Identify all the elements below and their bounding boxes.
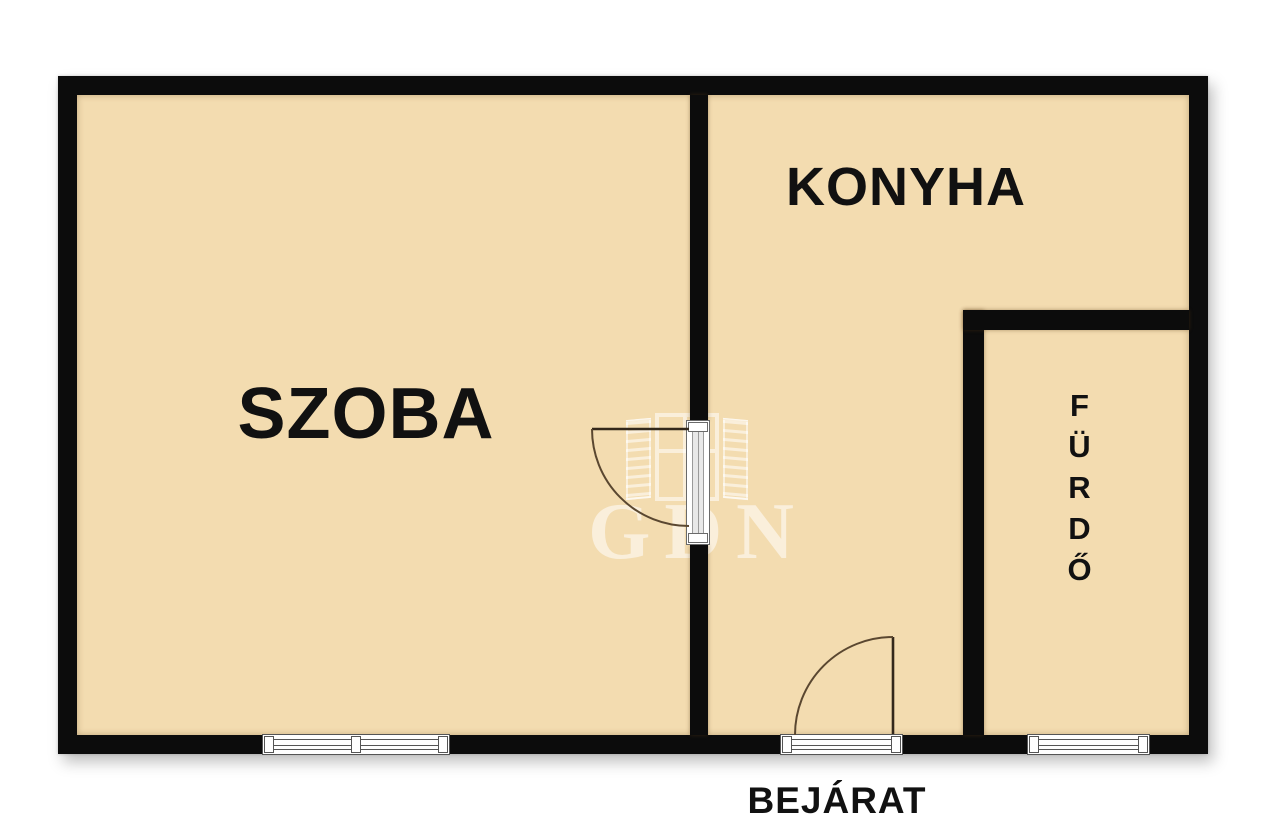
door-jamb-bottom — [688, 533, 708, 543]
threshold-jamb-left — [782, 736, 792, 753]
interior-door — [686, 420, 710, 545]
threshold-lines — [791, 739, 892, 750]
window-jamb-left — [264, 736, 274, 753]
entrance-label: BEJÁRAT — [687, 781, 987, 821]
window-right — [1027, 734, 1150, 755]
floor-plan-page: GDN — [0, 0, 1280, 837]
window-left — [262, 734, 450, 755]
wall-furdo-top — [963, 310, 1189, 330]
room-label-konyha: KONYHA — [706, 159, 1106, 215]
door-jamb-top — [688, 422, 708, 432]
threshold-jamb-right — [891, 736, 901, 753]
interior-door-leaf-closed — [692, 432, 704, 533]
wall-szoba-konyha-lower — [690, 545, 708, 735]
entrance-threshold — [780, 734, 903, 755]
window-jamb-right — [438, 736, 448, 753]
room-label-szoba: SZOBA — [166, 377, 566, 451]
window-jamb-left — [1029, 736, 1039, 753]
window-mullion — [351, 736, 361, 753]
window-jamb-right — [1138, 736, 1148, 753]
wall-furdo-left — [963, 310, 984, 735]
wall-szoba-konyha-upper — [690, 95, 708, 420]
window-glazing-lines — [1038, 739, 1139, 750]
room-label-furdo: FÜRDŐ — [1047, 392, 1111, 588]
